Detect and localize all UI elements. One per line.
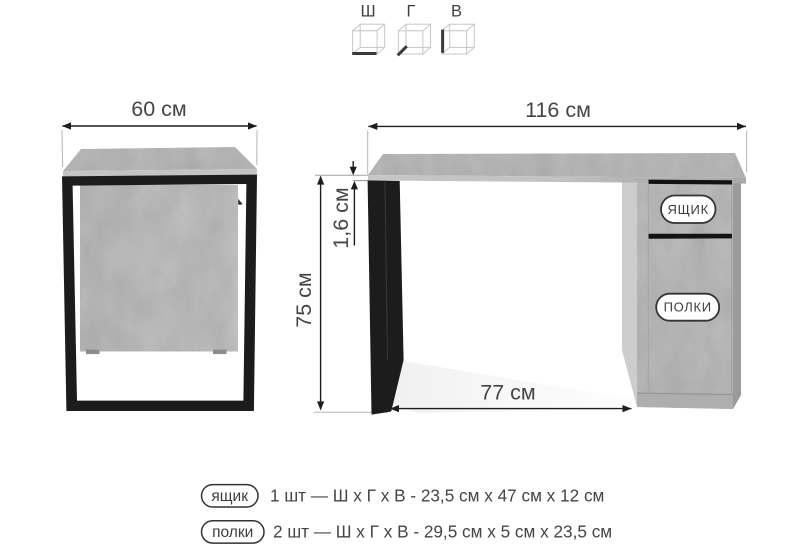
svg-text:полки: полки — [212, 524, 253, 541]
svg-text:116 см: 116 см — [525, 98, 591, 122]
svg-text:ПОЛКИ: ПОЛКИ — [664, 300, 712, 315]
svg-text:1 шт — Ш х Г х В - 23,5 см х 4: 1 шт — Ш х Г х В - 23,5 см х 47 см х 12 … — [270, 486, 604, 506]
svg-text:Ш: Ш — [360, 3, 375, 21]
svg-text:75 см: 75 см — [292, 272, 316, 327]
svg-text:60 см: 60 см — [131, 97, 186, 121]
svg-text:ящик: ящик — [211, 488, 248, 505]
svg-text:2 шт — Ш х Г х В - 29,5 см х: 2 шт — Ш х Г х В - 29,5 см х 5 см х 23,5… — [273, 522, 612, 542]
svg-text:ЯЩИК: ЯЩИК — [668, 202, 709, 217]
svg-text:77 см: 77 см — [480, 381, 535, 405]
svg-text:В: В — [451, 3, 462, 21]
svg-text:Г: Г — [407, 3, 416, 21]
svg-text:1,6 см: 1,6 см — [329, 187, 353, 248]
